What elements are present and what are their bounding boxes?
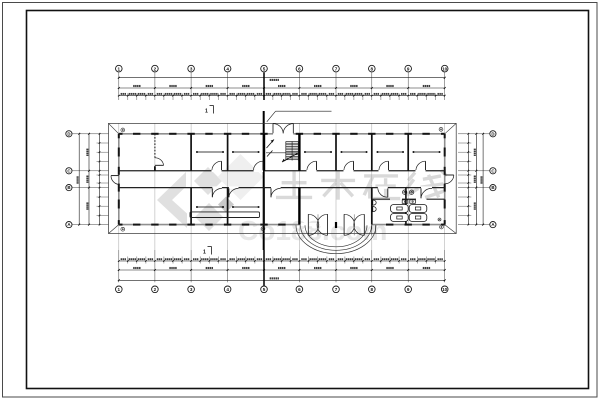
svg-text:1: 1 (203, 250, 206, 256)
svg-text:1: 1 (205, 109, 208, 115)
svg-text:7: 7 (335, 66, 338, 71)
svg-text:6: 6 (298, 66, 301, 71)
svg-text:8: 8 (371, 287, 374, 292)
svg-text:10: 10 (442, 287, 448, 292)
svg-text:D: D (491, 131, 494, 136)
svg-text:5: 5 (263, 66, 266, 71)
svg-text:4: 4 (226, 287, 229, 292)
svg-text:2: 2 (154, 287, 157, 292)
svg-text:8: 8 (371, 66, 374, 71)
svg-text:3: 3 (190, 287, 193, 292)
svg-text:5: 5 (263, 287, 266, 292)
svg-text:10: 10 (442, 66, 448, 71)
svg-text:7: 7 (335, 287, 338, 292)
svg-text:2: 2 (154, 66, 157, 71)
svg-text:3: 3 (190, 66, 193, 71)
svg-text:4: 4 (226, 66, 229, 71)
svg-text:9: 9 (407, 287, 410, 292)
svg-text:6: 6 (298, 287, 301, 292)
svg-text:1: 1 (118, 66, 121, 71)
svg-text:1: 1 (118, 287, 121, 292)
svg-text:B: B (67, 185, 70, 190)
svg-text:9: 9 (407, 66, 410, 71)
svg-text:B: B (491, 185, 494, 190)
svg-text:D: D (67, 131, 70, 136)
svg-text:Co188.com: Co188.com (238, 215, 387, 246)
